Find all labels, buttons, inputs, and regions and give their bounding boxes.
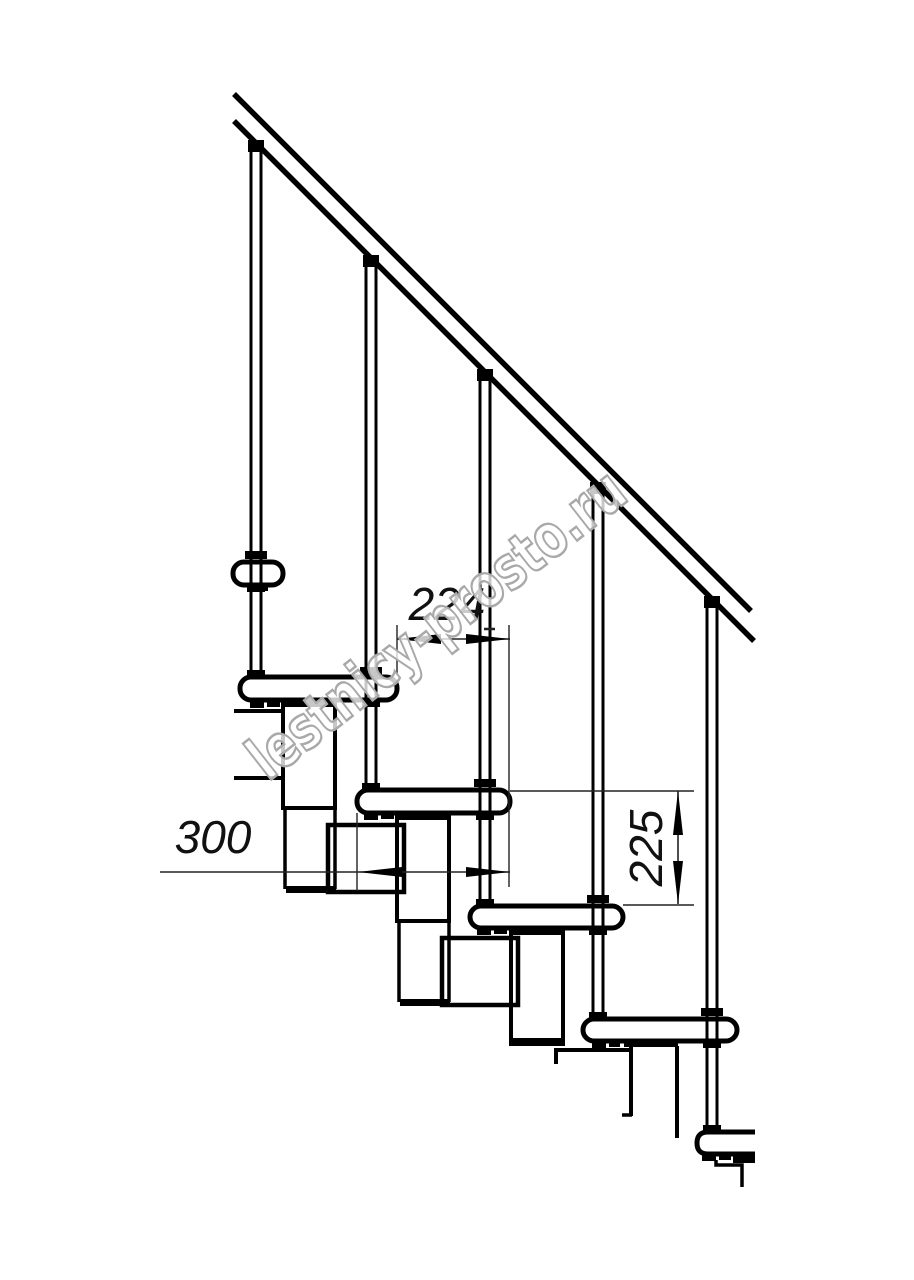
tread-upper-cut <box>233 562 283 585</box>
dimension-label-300: 300 <box>175 811 252 863</box>
tread-lower-cut <box>697 1132 755 1154</box>
tread <box>583 1019 737 1041</box>
technical-drawing: 224 300 225 lestnicy-prosto.ru <box>0 0 914 1280</box>
tread <box>357 790 510 813</box>
dimension-label-225: 225 <box>620 809 672 887</box>
drawing-page: 224 300 225 lestnicy-prosto.ru <box>0 0 914 1280</box>
tread <box>470 906 623 928</box>
